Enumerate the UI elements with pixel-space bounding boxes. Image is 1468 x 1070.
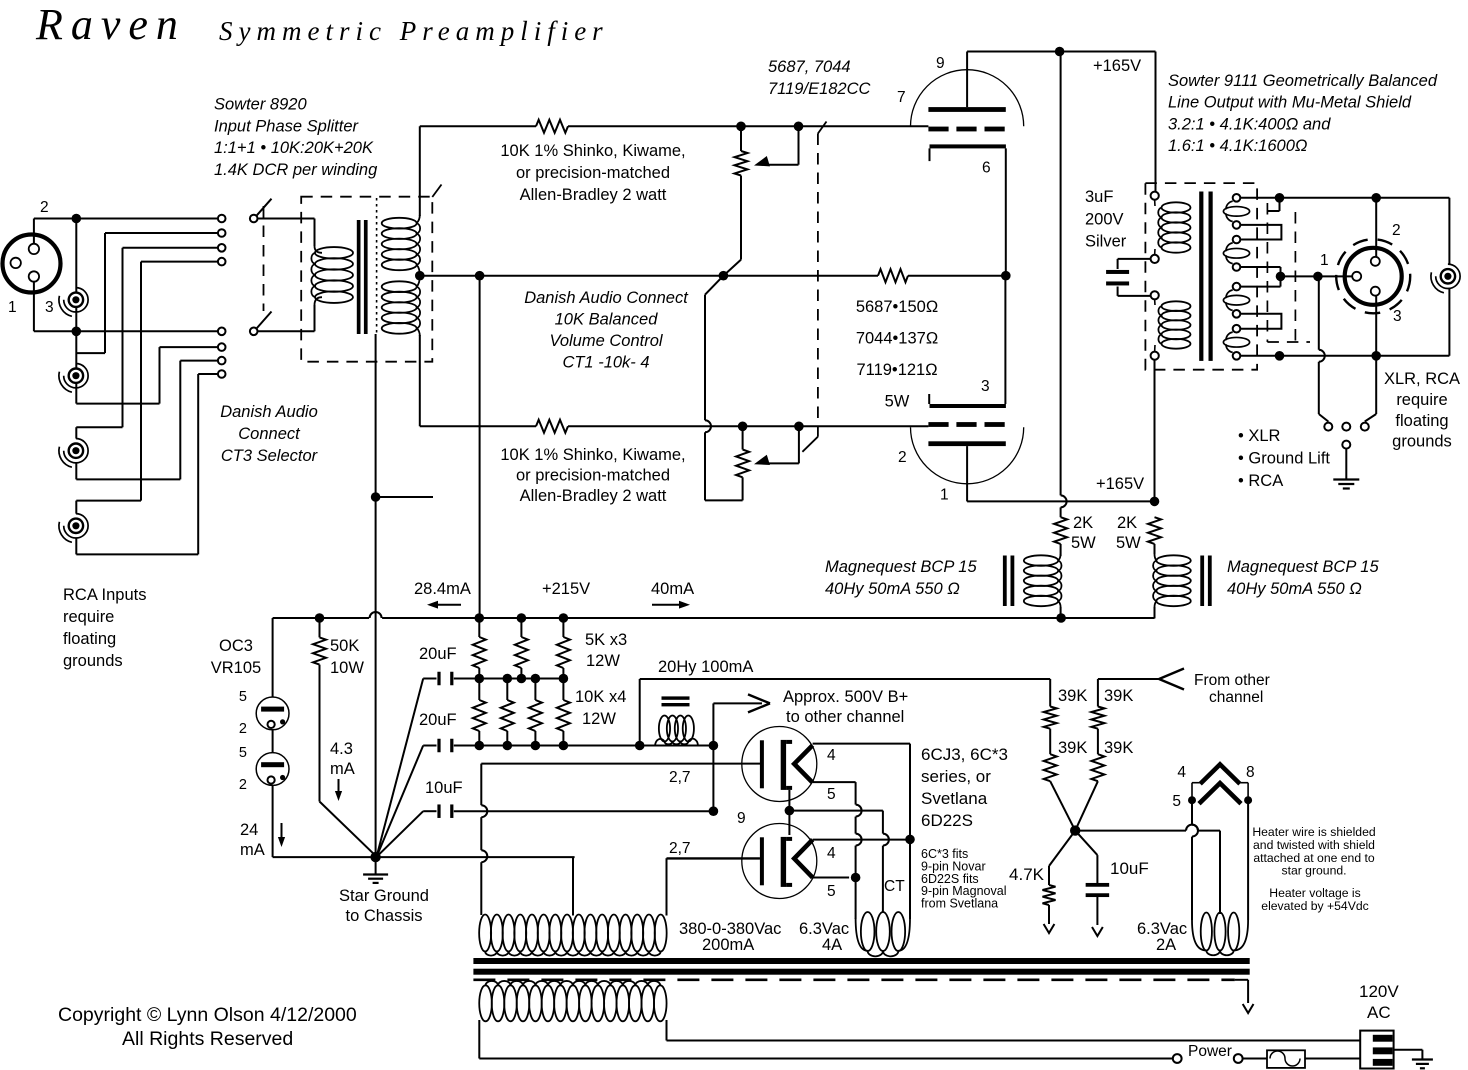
svg-text:2: 2 — [898, 449, 907, 466]
svg-text:or precision-matched: or precision-matched — [516, 164, 670, 182]
svg-text:10W: 10W — [330, 659, 364, 677]
svg-text:Star Ground: Star Ground — [339, 887, 429, 905]
svg-text:Magnequest BCP 15: Magnequest BCP 15 — [825, 558, 977, 576]
svg-text:120V: 120V — [1359, 982, 1399, 1001]
svg-text:50K: 50K — [330, 637, 359, 655]
svg-text:Danish Audio: Danish Audio — [220, 403, 318, 421]
svg-text:2: 2 — [40, 199, 49, 216]
svg-text:10K 1% Shinko, Kiwame,: 10K 1% Shinko, Kiwame, — [500, 142, 685, 160]
svg-text:10uF: 10uF — [1110, 859, 1149, 878]
svg-text:7119/E182CC: 7119/E182CC — [768, 80, 871, 98]
svg-text:40Hy 50mA 550 Ω: 40Hy 50mA 550 Ω — [825, 580, 960, 598]
svg-text:CT3 Selector: CT3 Selector — [221, 447, 319, 465]
svg-text:20uF: 20uF — [419, 711, 457, 729]
svg-text:12W: 12W — [586, 652, 620, 670]
svg-text:floating: floating — [63, 630, 116, 648]
svg-text:5W: 5W — [885, 393, 910, 411]
svg-text:+165V: +165V — [1093, 57, 1141, 75]
svg-text:elevated by +54Vdc: elevated by +54Vdc — [1261, 899, 1368, 913]
svg-text:CT: CT — [884, 878, 905, 895]
svg-text:or precision-matched: or precision-matched — [516, 467, 670, 485]
svg-text:10K Balanced: 10K Balanced — [555, 311, 659, 329]
svg-text:6D22S: 6D22S — [921, 811, 973, 830]
svg-text:5W: 5W — [1071, 534, 1096, 552]
svg-text:2: 2 — [1392, 222, 1401, 239]
svg-text:Symmetric Preamplifier: Symmetric Preamplifier — [219, 16, 609, 46]
svg-text:7119•121Ω: 7119•121Ω — [856, 361, 937, 379]
svg-text:Raven: Raven — [35, 0, 186, 49]
svg-text:200mA: 200mA — [702, 936, 754, 954]
svg-text:Connect: Connect — [238, 425, 301, 443]
svg-text:24: 24 — [240, 821, 258, 839]
svg-text:Sowter 8920: Sowter 8920 — [214, 96, 307, 114]
svg-text:Heater voltage is: Heater voltage is — [1269, 886, 1360, 900]
svg-text:1: 1 — [8, 299, 17, 316]
svg-text:to Chassis: to Chassis — [345, 907, 422, 925]
svg-text:1:1+1 • 10K:20K+20K: 1:1+1 • 10K:20K+20K — [214, 139, 374, 157]
svg-text:3: 3 — [45, 299, 54, 316]
svg-text:1: 1 — [1320, 252, 1329, 269]
svg-text:4: 4 — [827, 845, 836, 862]
svg-text:Approx. 500V B+: Approx. 500V B+ — [783, 688, 908, 706]
svg-text:Danish Audio Connect: Danish Audio Connect — [524, 289, 689, 307]
svg-text:3.2:1 • 4.1K:400Ω and: 3.2:1 • 4.1K:400Ω and — [1168, 115, 1331, 133]
svg-text:Magnequest BCP 15: Magnequest BCP 15 — [1227, 558, 1379, 576]
svg-text:20uF: 20uF — [419, 645, 457, 663]
svg-text:5W: 5W — [1116, 534, 1141, 552]
svg-text:from Svetlana: from Svetlana — [921, 897, 998, 911]
svg-text:From other: From other — [1194, 672, 1270, 689]
svg-text:OC3: OC3 — [219, 637, 253, 655]
svg-text:CT1 -10k- 4: CT1 -10k- 4 — [562, 354, 649, 372]
svg-text:2A: 2A — [1156, 936, 1176, 954]
svg-text:6CJ3, 6C*3: 6CJ3, 6C*3 — [921, 745, 1008, 764]
svg-text:2: 2 — [239, 777, 247, 793]
svg-text:10K 1% Shinko, Kiwame,: 10K 1% Shinko, Kiwame, — [500, 446, 685, 464]
svg-text:40Hy 50mA 550 Ω: 40Hy 50mA 550 Ω — [1227, 580, 1362, 598]
svg-text:200V: 200V — [1085, 210, 1124, 228]
svg-text:Heater wire is shielded: Heater wire is shielded — [1252, 825, 1375, 839]
svg-text:Allen-Bradley 2 watt: Allen-Bradley 2 watt — [520, 487, 667, 505]
svg-text:• RCA: • RCA — [1238, 472, 1283, 490]
svg-text:2,7: 2,7 — [669, 840, 691, 857]
svg-text:series, or: series, or — [921, 767, 991, 786]
svg-text:2,7: 2,7 — [669, 769, 691, 786]
svg-text:Copyright © Lynn Olson 4/12/20: Copyright © Lynn Olson 4/12/2000 — [58, 1004, 357, 1026]
svg-text:VR105: VR105 — [211, 659, 261, 677]
svg-text:5K x3: 5K x3 — [585, 631, 627, 649]
svg-text:require: require — [63, 608, 114, 626]
svg-text:floating: floating — [1395, 412, 1448, 430]
svg-text:5687•150Ω: 5687•150Ω — [856, 298, 938, 316]
svg-text:10K x4: 10K x4 — [575, 688, 626, 706]
svg-text:3uF: 3uF — [1085, 188, 1113, 206]
svg-text:to other channel: to other channel — [786, 708, 904, 726]
svg-text:1.6:1 • 4.1K:1600Ω: 1.6:1 • 4.1K:1600Ω — [1168, 137, 1307, 155]
svg-text:+165V: +165V — [1096, 475, 1144, 493]
svg-text:require: require — [1396, 391, 1447, 409]
svg-text:+215V: +215V — [542, 580, 590, 598]
svg-text:4.7K: 4.7K — [1009, 865, 1045, 884]
svg-text:star ground.: star ground. — [1281, 864, 1346, 878]
svg-text:4: 4 — [1177, 764, 1186, 781]
svg-text:Input Phase Splitter: Input Phase Splitter — [214, 117, 360, 135]
svg-text:5: 5 — [239, 689, 247, 705]
svg-text:28.4mA: 28.4mA — [414, 580, 471, 598]
svg-text:6: 6 — [982, 160, 991, 177]
svg-text:RCA Inputs: RCA Inputs — [63, 586, 146, 604]
svg-text:2K: 2K — [1073, 514, 1093, 532]
svg-text:All Rights Reserved: All Rights Reserved — [122, 1028, 293, 1050]
svg-text:• Ground Lift: • Ground Lift — [1238, 450, 1330, 468]
svg-text:2: 2 — [239, 721, 247, 737]
svg-text:39K: 39K — [1058, 739, 1087, 757]
svg-text:4A: 4A — [822, 936, 842, 954]
svg-text:1.4K DCR per winding: 1.4K DCR per winding — [214, 161, 378, 179]
svg-text:Power: Power — [1188, 1043, 1232, 1060]
svg-text:Line Output with Mu-Metal Shie: Line Output with Mu-Metal Shield — [1168, 94, 1412, 112]
svg-text:grounds: grounds — [63, 652, 123, 670]
svg-text:5: 5 — [1172, 793, 1181, 810]
svg-text:5687, 7044: 5687, 7044 — [768, 58, 851, 76]
svg-text:5: 5 — [239, 745, 247, 761]
svg-text:12W: 12W — [582, 710, 616, 728]
svg-text:9: 9 — [737, 810, 746, 827]
svg-text:grounds: grounds — [1392, 433, 1452, 451]
svg-text:attached at one end to: attached at one end to — [1253, 851, 1375, 865]
svg-text:39K: 39K — [1058, 687, 1087, 705]
svg-text:8: 8 — [1246, 764, 1255, 781]
svg-text:Volume Control: Volume Control — [549, 332, 663, 350]
svg-text:Silver: Silver — [1085, 233, 1127, 251]
svg-text:40mA: 40mA — [651, 580, 694, 598]
svg-text:10uF: 10uF — [425, 779, 463, 797]
svg-text:5: 5 — [827, 786, 836, 803]
svg-text:mA: mA — [330, 760, 355, 778]
svg-text:3: 3 — [981, 378, 990, 395]
svg-text:39K: 39K — [1104, 739, 1133, 757]
svg-text:9: 9 — [936, 55, 945, 72]
svg-text:Allen-Bradley 2 watt: Allen-Bradley 2 watt — [520, 186, 667, 204]
svg-text:XLR, RCA: XLR, RCA — [1384, 370, 1460, 388]
svg-text:20Hy 100mA: 20Hy 100mA — [658, 658, 753, 676]
svg-text:Svetlana: Svetlana — [921, 789, 988, 808]
svg-text:1: 1 — [940, 487, 949, 504]
svg-text:4: 4 — [827, 747, 836, 764]
svg-text:5: 5 — [827, 883, 836, 900]
svg-text:• XLR: • XLR — [1238, 427, 1281, 445]
svg-text:7044•137Ω: 7044•137Ω — [856, 330, 938, 348]
svg-text:2K: 2K — [1117, 514, 1137, 532]
svg-text:AC: AC — [1367, 1003, 1391, 1022]
svg-text:channel: channel — [1209, 689, 1263, 706]
svg-text:mA: mA — [240, 841, 265, 859]
svg-text:4.3: 4.3 — [330, 740, 353, 758]
svg-text:7: 7 — [897, 89, 906, 106]
svg-text:39K: 39K — [1104, 687, 1133, 705]
svg-text:Sowter 9111 Geometrically Bala: Sowter 9111 Geometrically Balanced — [1168, 72, 1438, 90]
svg-text:and twisted with shield: and twisted with shield — [1253, 838, 1375, 852]
svg-text:3: 3 — [1393, 308, 1402, 325]
